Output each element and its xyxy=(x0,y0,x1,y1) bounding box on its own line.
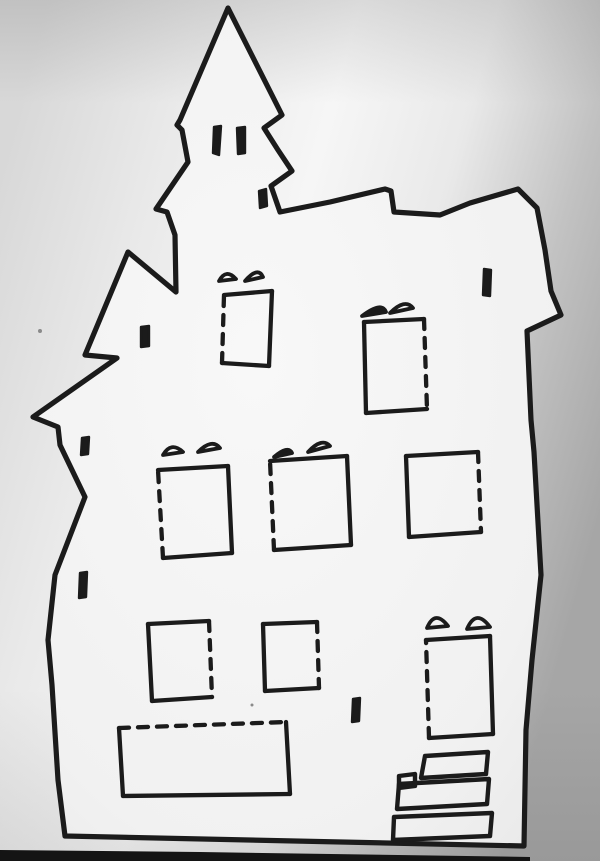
haunted-house-drawing xyxy=(0,0,600,861)
left-attic-slit xyxy=(141,326,149,347)
right-wall-slit xyxy=(483,269,491,296)
tower-base-slit xyxy=(259,189,267,208)
tower-slit-right xyxy=(237,127,245,154)
tower-slit-left xyxy=(213,126,221,155)
photo-background xyxy=(0,0,600,861)
left-wall-lower-slit xyxy=(79,572,87,598)
left-wall-upper-slit xyxy=(81,437,89,455)
lower-wall-slit xyxy=(352,698,360,722)
